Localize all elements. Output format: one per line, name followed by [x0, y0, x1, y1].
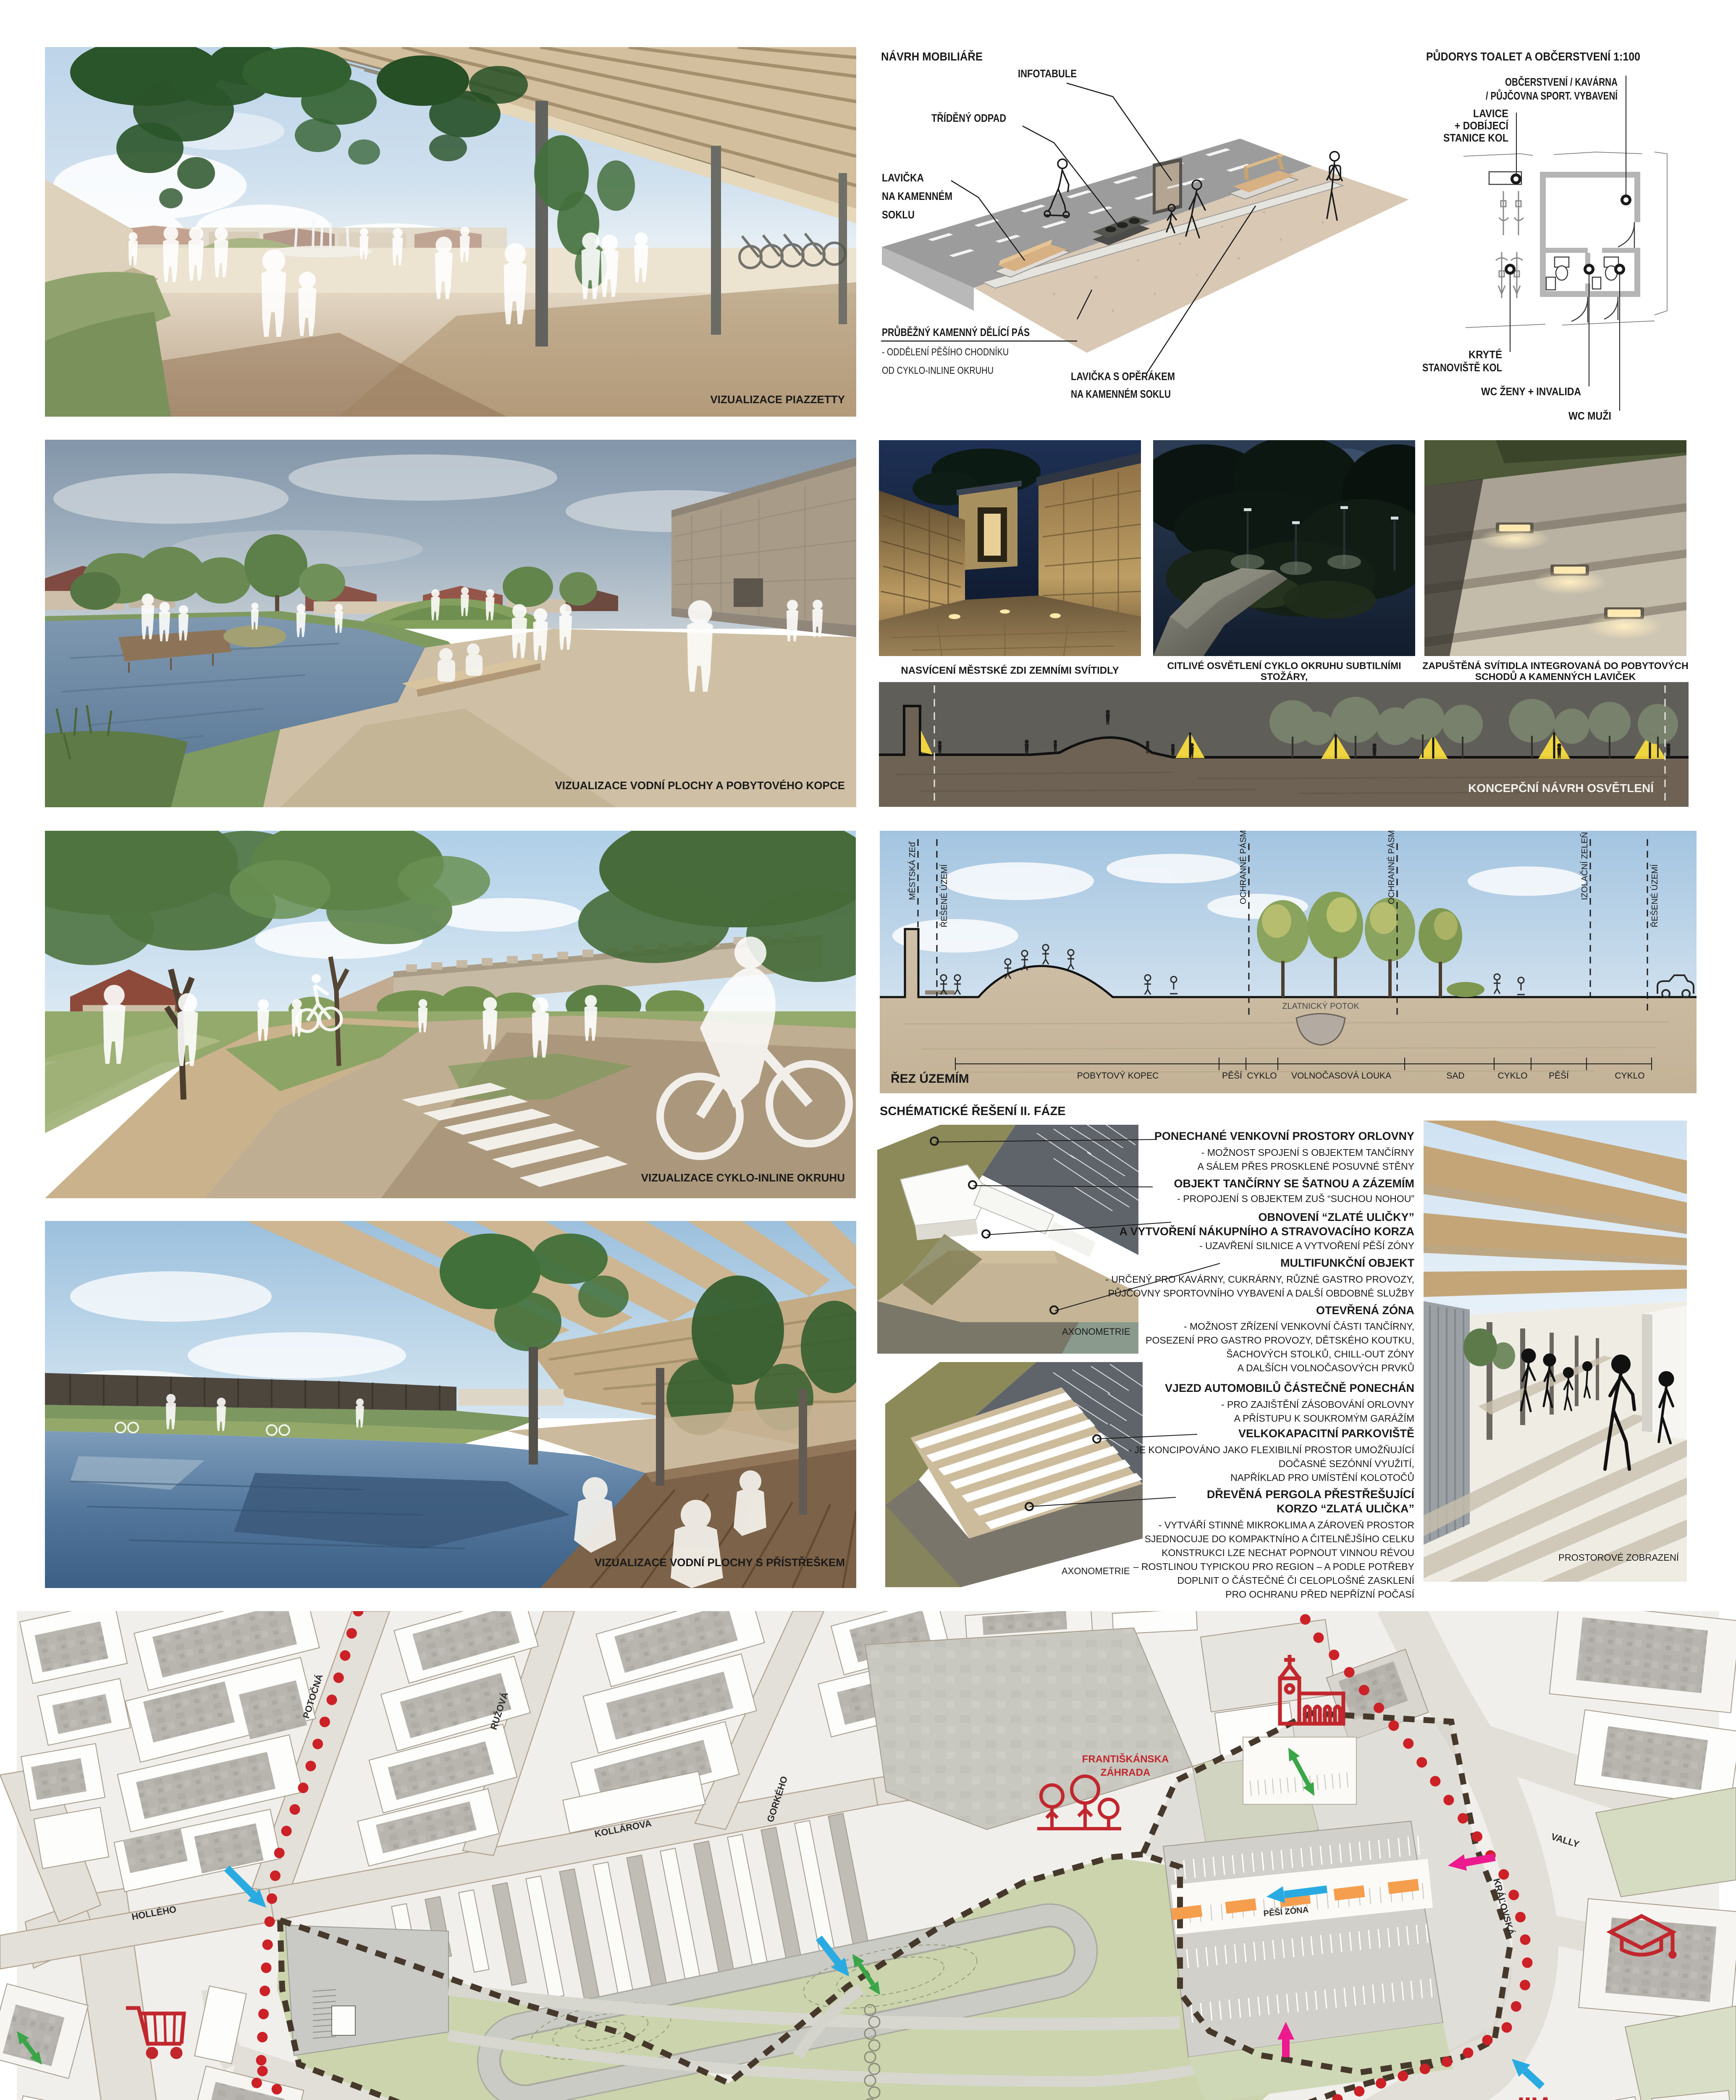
svg-text:LAVICE: LAVICE: [1473, 107, 1508, 120]
svg-text:WC ŽENY + INVALIDA: WC ŽENY + INVALIDA: [1481, 385, 1581, 398]
svg-text:CYKLO: CYKLO: [1247, 1071, 1277, 1081]
svg-text:KRYTÉ: KRYTÉ: [1469, 348, 1502, 361]
svg-text:ŘEŠENÉ ÚZEMÍ: ŘEŠENÉ ÚZEMÍ: [1650, 864, 1660, 927]
svg-text:VIZUALIZACE PIAZZETTY: VIZUALIZACE PIAZZETTY: [710, 393, 845, 406]
svg-text:ZLATNICKÝ POTOK: ZLATNICKÝ POTOK: [1282, 1001, 1359, 1011]
svg-text:PŮDORYS TOALET A OBČERSTVENÍ 1: PŮDORYS TOALET A OBČERSTVENÍ 1:100: [1426, 49, 1640, 63]
svg-text:MĚSTSKÁ ZEď: MĚSTSKÁ ZEď: [907, 841, 917, 900]
svg-text:SOKLU: SOKLU: [882, 208, 915, 221]
svg-text:NÁVRH MOBILIÁŘE: NÁVRH MOBILIÁŘE: [881, 50, 983, 63]
svg-text:SAD: SAD: [1446, 1071, 1464, 1081]
svg-text:CYKLO: CYKLO: [1497, 1071, 1527, 1081]
svg-text:STANICE KOL: STANICE KOL: [1443, 131, 1508, 144]
svg-text:TŘÍDĚNÝ ODPAD: TŘÍDĚNÝ ODPAD: [931, 112, 1006, 124]
svg-text:CYKLO: CYKLO: [1615, 1071, 1644, 1081]
svg-text:IZOLAČNÍ ZELEŇ: IZOLAČNÍ ZELEŇ: [1580, 832, 1589, 900]
svg-text:NA KAMENNÉM SOKLU: NA KAMENNÉM SOKLU: [1071, 388, 1171, 400]
svg-text:PĚŠÍ: PĚŠÍ: [1549, 1071, 1569, 1081]
svg-text:VIZUALIZACE CYKLO-INLINE OKRUH: VIZUALIZACE CYKLO-INLINE OKRUHU: [641, 1171, 845, 1184]
svg-text:POBYTOVÝ KOPEC: POBYTOVÝ KOPEC: [1077, 1071, 1159, 1081]
svg-text:PRŮBĚŽNÝ KAMENNÝ DĚLÍCÍ PÁS: PRŮBĚŽNÝ KAMENNÝ DĚLÍCÍ PÁS: [882, 325, 1030, 339]
svg-text:KONCEPČNÍ NÁVRH OSVĚTLENÍ: KONCEPČNÍ NÁVRH OSVĚTLENÍ: [1468, 781, 1654, 795]
svg-text:VIZUALIZACE VODNÍ PLOCHY A POB: VIZUALIZACE VODNÍ PLOCHY A POBYTOVÉHO KO…: [555, 779, 845, 792]
svg-text:PĚŠÍ: PĚŠÍ: [1222, 1071, 1242, 1081]
svg-text:OBČERSTVENÍ / KAVÁRNA: OBČERSTVENÍ / KAVÁRNA: [1505, 76, 1618, 88]
svg-text:OCHRANNÉ PÁSMO: OCHRANNÉ PÁSMO: [1387, 831, 1396, 904]
svg-text:NA KAMENNÉM: NA KAMENNÉM: [882, 190, 952, 202]
svg-text:- ODDĚLENÍ PĚŠÍHO CHODNÍKU: - ODDĚLENÍ PĚŠÍHO CHODNÍKU: [882, 346, 1009, 358]
svg-text:ŘEZ ÚZEMÍM: ŘEZ ÚZEMÍM: [891, 1071, 969, 1086]
svg-text:VIZUALIZACE VODNÍ PLOCHY S PŘÍ: VIZUALIZACE VODNÍ PLOCHY S PŘÍSTŘEŠKEM: [595, 1556, 845, 1569]
svg-text:ZÁHRADA: ZÁHRADA: [1101, 1767, 1151, 1778]
svg-text:WC MUŽI: WC MUŽI: [1568, 409, 1611, 422]
svg-text:OD CYKLO-INLINE OKRUHU: OD CYKLO-INLINE OKRUHU: [882, 365, 994, 376]
svg-text:ŘEŠENÉ ÚZEMÍ: ŘEŠENÉ ÚZEMÍ: [939, 864, 949, 927]
svg-text:+ DOBÍJECÍ: + DOBÍJECÍ: [1455, 119, 1509, 132]
svg-text:PROSTOROVÉ ZOBRAZENÍ: PROSTOROVÉ ZOBRAZENÍ: [1558, 1552, 1679, 1563]
svg-text:/ PŮJČOVNA SPORT. VYBAVENÍ: / PŮJČOVNA SPORT. VYBAVENÍ: [1486, 89, 1618, 102]
svg-text:VOLNOČASOVÁ LOUKA: VOLNOČASOVÁ LOUKA: [1291, 1071, 1391, 1081]
svg-text:LAVIČKA: LAVIČKA: [882, 171, 924, 184]
svg-text:STANOVIŠTĚ KOL: STANOVIŠTĚ KOL: [1422, 361, 1502, 374]
svg-text:FRANTIŠKÁNSKA: FRANTIŠKÁNSKA: [1082, 1753, 1169, 1765]
svg-text:OCHRANNÉ PÁSMO: OCHRANNÉ PÁSMO: [1238, 831, 1248, 904]
svg-text:LAVIČKA S OPĚRÁKEM: LAVIČKA S OPĚRÁKEM: [1071, 370, 1175, 383]
svg-text:INFOTABULE: INFOTABULE: [1018, 67, 1077, 80]
